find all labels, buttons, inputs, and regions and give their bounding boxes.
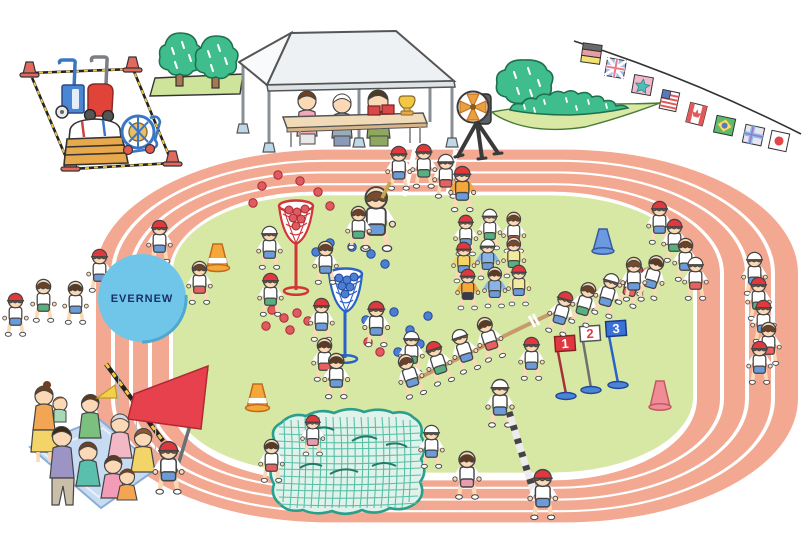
svg-text:1: 1	[561, 336, 569, 351]
svg-text:3: 3	[612, 321, 620, 336]
svg-text:EVERNEW: EVERNEW	[111, 293, 174, 305]
svg-text:2: 2	[586, 326, 594, 341]
